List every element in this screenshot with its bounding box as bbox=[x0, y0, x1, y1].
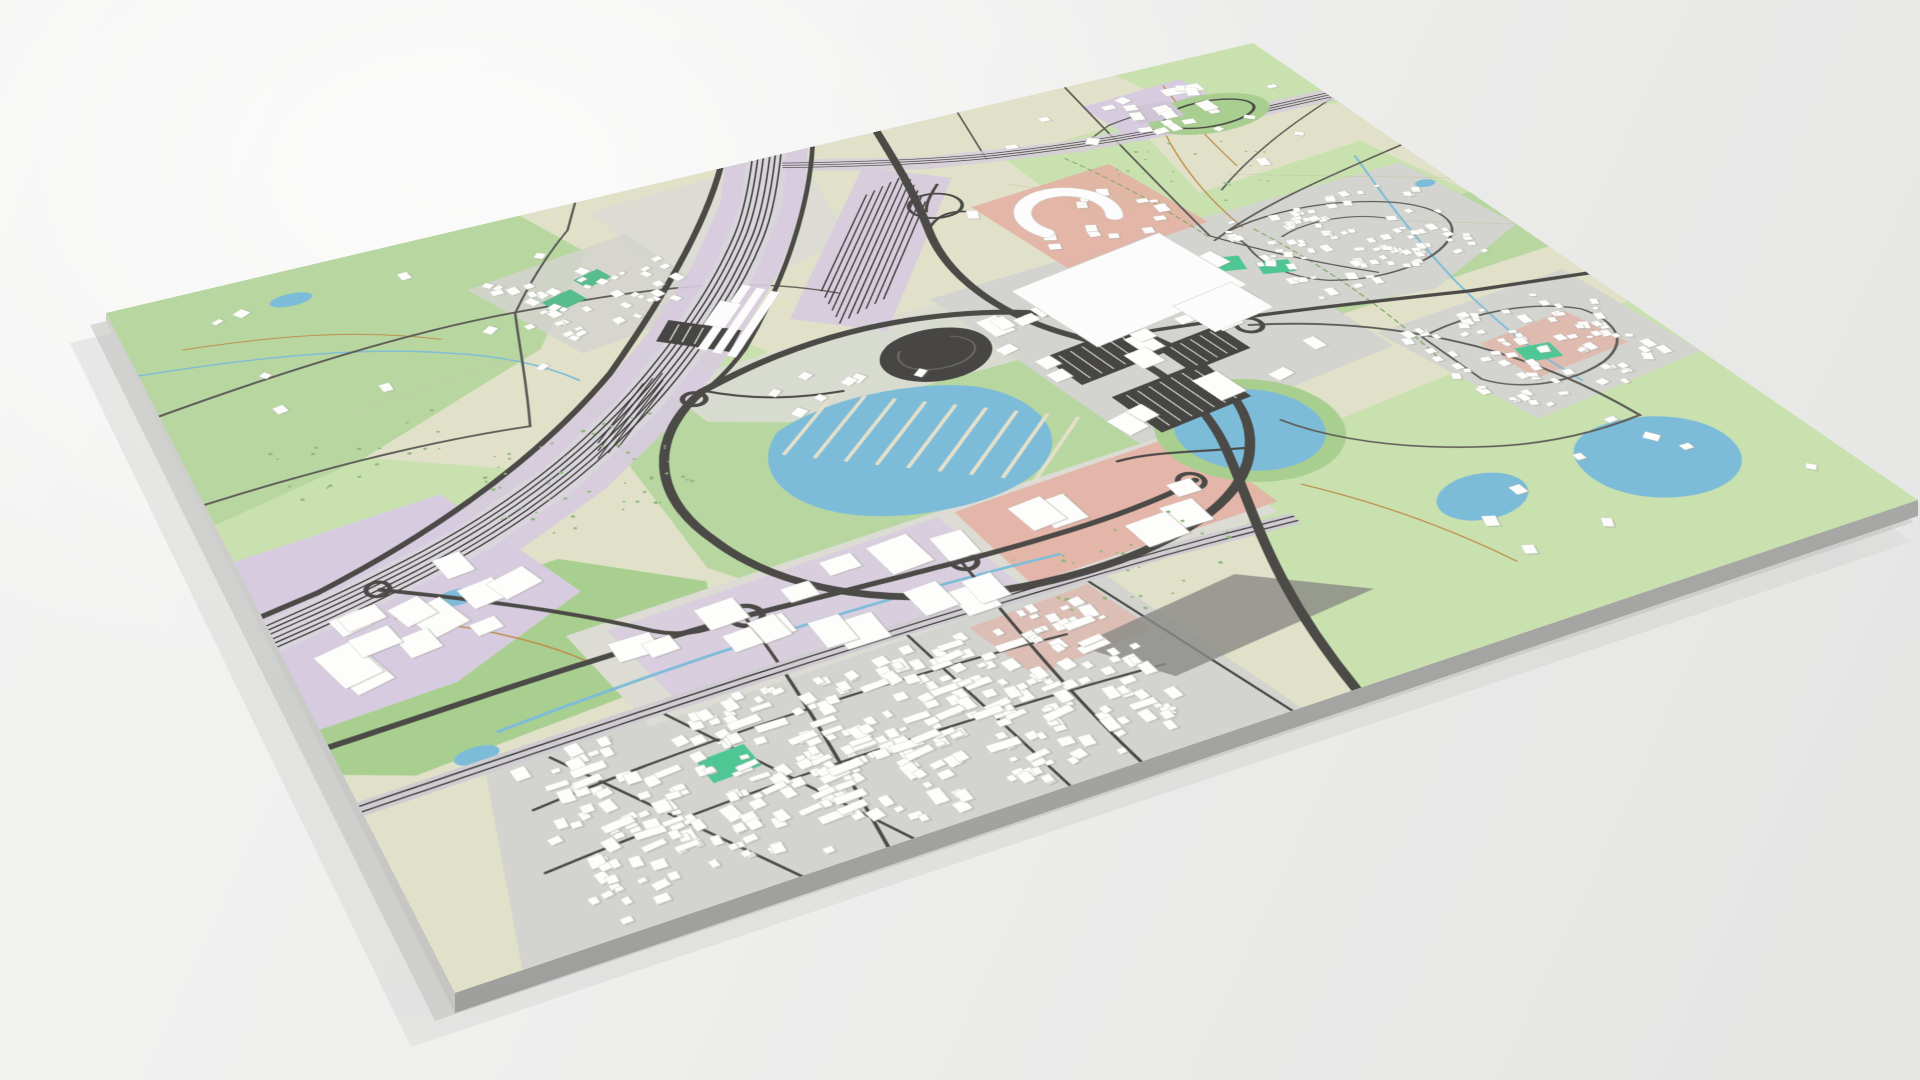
studio-background bbox=[0, 0, 1920, 1080]
